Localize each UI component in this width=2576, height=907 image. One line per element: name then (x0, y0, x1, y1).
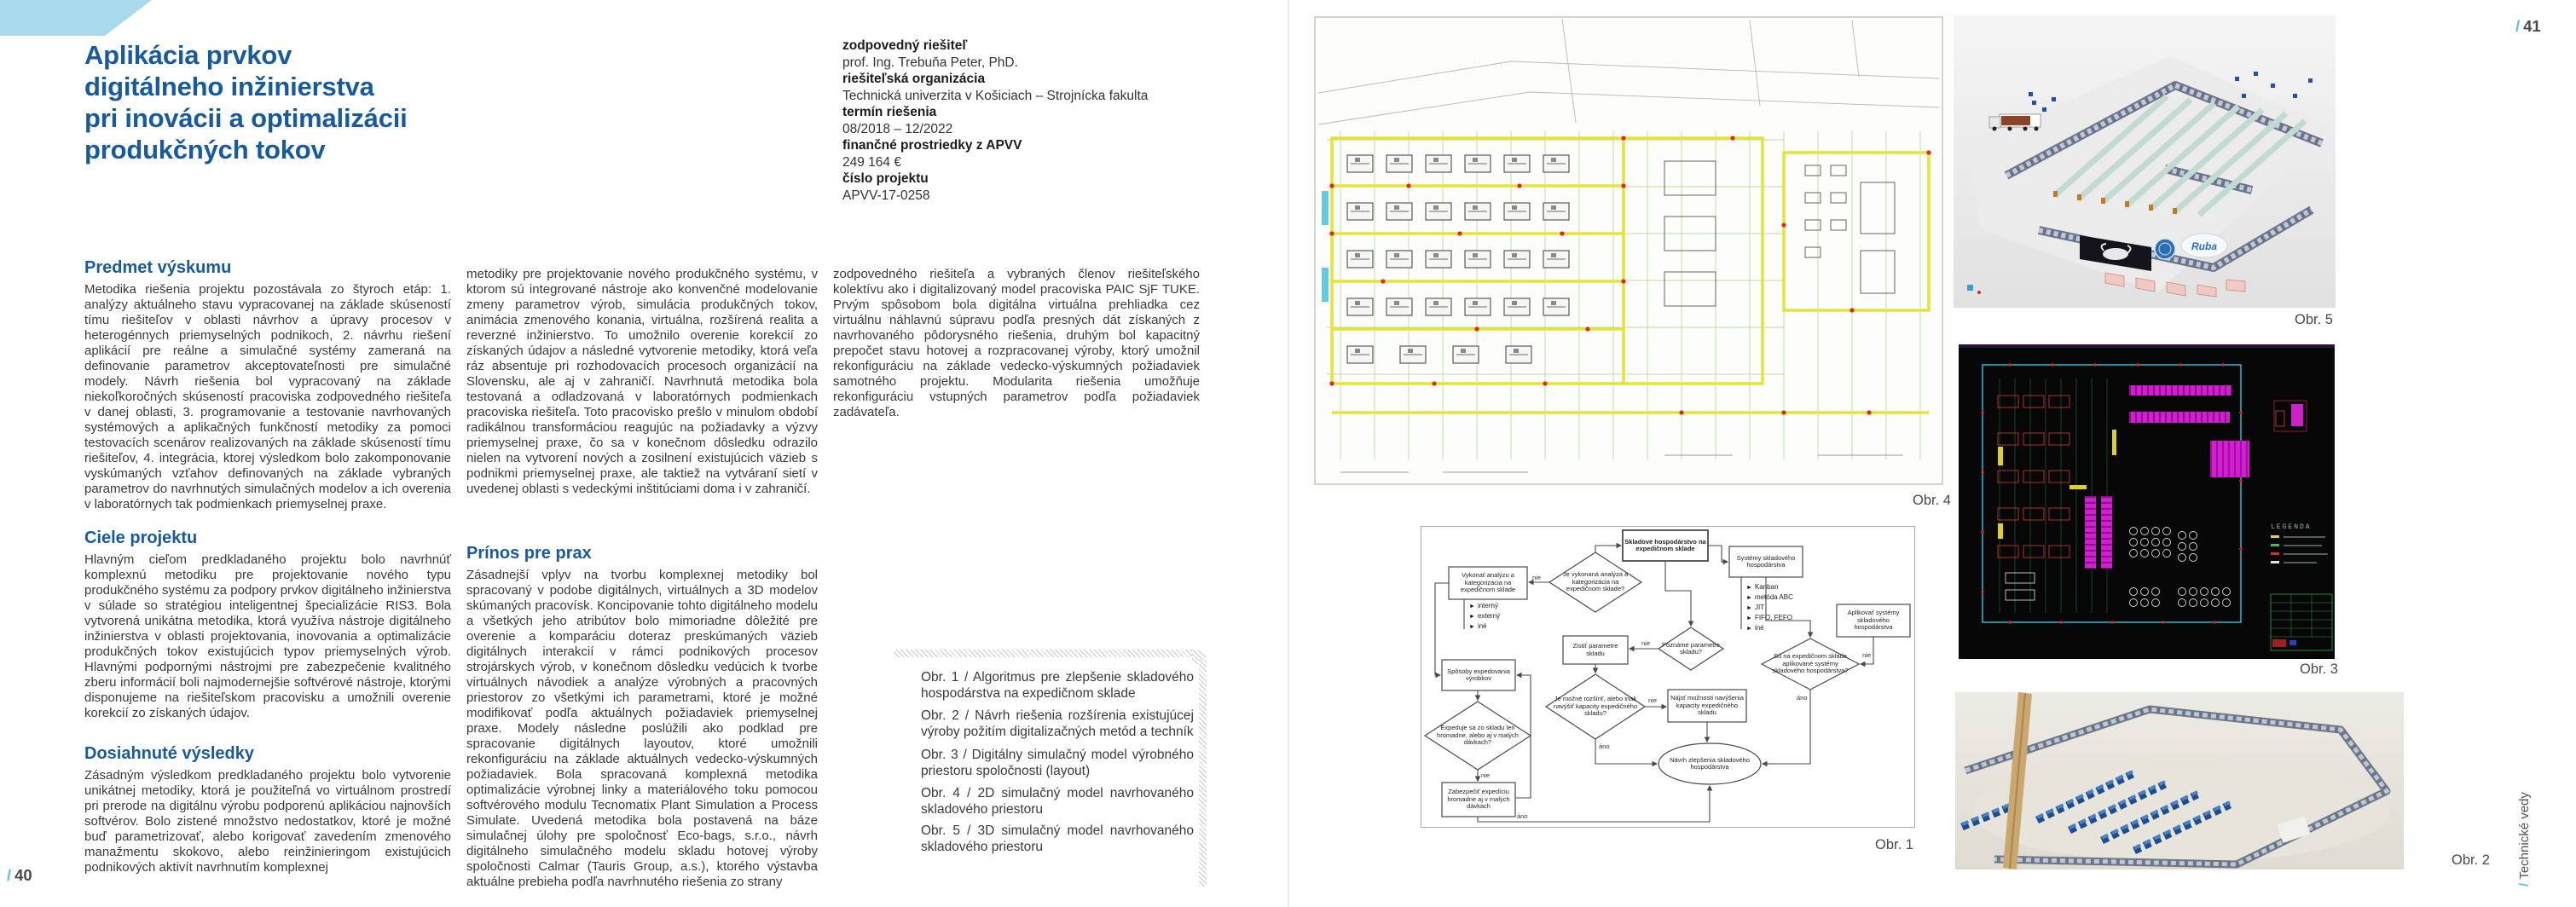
captions-frame-right (1199, 660, 1207, 887)
flowchart-node-end: Návrh zlepšenia skladového hospodárstva (1664, 747, 1756, 781)
meta-label: finančné prostriedky z APVV (842, 137, 1218, 154)
section-heading: Dosiahnuté výsledky (84, 743, 451, 764)
bullet-arrow-icon: ► (1746, 615, 1752, 621)
section-heading: Predmet výskumu (84, 257, 451, 278)
section-body: Hlavným cieľom predkladaného projektu bo… (84, 552, 451, 721)
section-body: Zásadným výsledkom predkladaného projekt… (84, 768, 451, 875)
bullet-arrow-icon: ► (1746, 605, 1752, 611)
flowchart-node-systems: Systémy skladového hospodárstva (1731, 548, 1801, 575)
bullet-label: JIT (1755, 604, 1764, 611)
bullet-label: FIFO, FEFO (1755, 614, 1792, 621)
flowchart-node-d-systems: Sú na expedičnom sklade aplikované systé… (1766, 643, 1855, 685)
page-number-right: /41 (2515, 17, 2541, 36)
edge-label-no: nie (1648, 696, 1657, 704)
page-number-value: 40 (14, 866, 32, 884)
meta-value: 08/2018 – 12/2022 (842, 121, 1218, 138)
figure-warehouse-flowchart: Skladové hospodárstvo na expedičnom skla… (1421, 526, 1915, 828)
bullet-arrow-icon: ► (1746, 626, 1752, 632)
section-body: zodpovedného riešiteľa a vybraných členo… (833, 267, 1200, 420)
edge-label-no: nie (1532, 574, 1541, 581)
ruba-logo: Ruba (2181, 234, 2227, 257)
section-prinos-continuation: zodpovedného riešiteľa a vybraných členo… (833, 267, 1200, 420)
section-heading: Ciele projektu (84, 528, 451, 548)
bullet-label: externý (1478, 612, 1500, 620)
section-prinos-pre-prax: Prínos pre prax Zásadnejší vplyv na tvor… (466, 543, 818, 890)
figure-caption-1: Obr. 1 / Algoritmus pre zlepšenie sklado… (921, 669, 1194, 702)
section-ciele-projektu: Ciele projektu Hlavným cieľom predkladan… (84, 528, 451, 721)
flowchart-bullet-item: ►iné (1746, 624, 1764, 633)
bullet-arrow-icon: ► (1469, 604, 1475, 609)
section-heading: Prínos pre prax (466, 543, 818, 563)
figure-label-obr5: Obr. 5 (2265, 312, 2333, 328)
flowchart-bullet-item: ►JIT (1746, 604, 1764, 612)
flowchart-node-d-analysis: Je vykonaná analýza a kategorizácia na e… (1558, 563, 1633, 602)
edge-label-no: nie (1641, 639, 1650, 647)
meta-label: termín riešenia (842, 104, 1218, 121)
figure-cad-floor-plan (1306, 12, 1951, 490)
flowchart-bullet-item: ►externý (1469, 612, 1500, 621)
flowchart-node-d-expand: Je možné rozšíriť, alebo inak navýšiť ka… (1553, 682, 1638, 731)
edge-label-no: nie (1481, 771, 1490, 779)
meta-label: riešiteľská organizácia (842, 71, 1218, 88)
bullet-arrow-icon: ► (1469, 614, 1475, 620)
flowchart-node-get-params: Zistiť parametre skladu (1565, 638, 1626, 662)
flowchart-node-d-params: Poznáme parametre skladu? (1662, 634, 1720, 663)
article-title: Aplikácia prvkov digitálneho inžinierstv… (84, 39, 460, 165)
top-border (1959, 344, 2335, 348)
figure-3d-layout-model (1955, 692, 2404, 869)
meta-label: číslo projektu (842, 170, 1218, 188)
figure-caption-3: Obr. 3 / Digitálny simulačný model výrob… (921, 747, 1194, 779)
project-metadata: zodpovedný riešiteľ prof. Ing. Trebuňa P… (842, 38, 1218, 204)
edge-label-yes: áno (1517, 812, 1528, 820)
bullet-label: iné (1478, 622, 1487, 630)
section-dosiahnute-vysledky: Dosiahnuté výsledky Zásadným výsledkom p… (84, 743, 451, 875)
section-predmet-vyskumu: Predmet výskumu Metodika riešenia projek… (84, 257, 451, 512)
captions-frame-top (894, 650, 1194, 657)
layout-3d-image (1955, 692, 2404, 869)
flowchart-node-dispatch-methods: Spôsoby expedovania výrobkov (1444, 661, 1514, 689)
bullet-label: iné (1755, 624, 1764, 632)
slash-icon: / (2517, 883, 2532, 887)
magazine-spread: Aplikácia prvkov digitálneho inžinierstv… (0, 0, 2576, 907)
ruba-logo-text: Ruba (2191, 240, 2217, 252)
cad-floor-plan-image (1306, 12, 1951, 490)
section-tag-vertical: / Technické vedy (2517, 750, 2532, 887)
bullet-arrow-icon: ► (1469, 624, 1475, 630)
section-body: metodiky pre projektovanie nového produk… (466, 267, 818, 497)
bullet-label: interný (1478, 602, 1498, 609)
floor-shadow (1972, 760, 2390, 863)
figure-label-obr2: Obr. 2 (2422, 852, 2490, 869)
bullet-arrow-icon: ► (1746, 595, 1752, 601)
meta-value: 249 164 € (842, 154, 1218, 171)
round-company-logo (2155, 239, 2175, 259)
page-gutter-divider (1288, 0, 1289, 907)
figure-dark-cad-layout: LEGENDA (1959, 344, 2335, 659)
figure-label-obr3: Obr. 3 (2270, 661, 2338, 678)
slash-icon: / (7, 866, 11, 884)
section-dosiahnute-continuation: metodiky pre projektovanie nového produk… (466, 267, 818, 497)
figure-label-obr4: Obr. 4 (1876, 493, 1951, 509)
legend-title: LEGENDA (2271, 523, 2312, 531)
section-body: Metodika riešenia projektu pozostávala z… (84, 282, 451, 512)
flowchart-node-ensure-dispatch: Zabezpečiť expedíciu hromadne aj v malýc… (1444, 784, 1514, 815)
section-body: Zásadnejší vplyv na tvorbu komplexnej me… (466, 568, 818, 890)
figure-label-obr1: Obr. 1 (1842, 837, 1913, 853)
flowchart-node-d-batches: Expeduje sa zo skladu len hromadne, aleb… (1432, 711, 1524, 760)
warehouse-3d-image: Ruba (1954, 15, 2336, 308)
bullet-arrow-icon: ► (1746, 585, 1752, 591)
edge-label-no: nie (1862, 651, 1871, 659)
page-number-value: 41 (2523, 17, 2541, 35)
edge-label-yes: áno (1797, 694, 1808, 702)
flowchart-node-analyze: Vykonať analýzu a kategorizácia na exped… (1450, 569, 1525, 598)
meta-value: prof. Ing. Trebuňa Peter, PhD. (842, 55, 1218, 72)
flowchart-node-find-options: Nájsť možnosti navýšenia kapacity expedi… (1670, 691, 1745, 720)
flowchart-node-start: Skladové hospodárstvo na expedičnom skla… (1624, 532, 1706, 559)
corner-accent-shape (0, 0, 152, 36)
bullet-label: Kanban (1755, 583, 1779, 591)
edge-label-yes: áno (1599, 742, 1610, 750)
figure-caption-2: Obr. 2 / Návrh riešenia rozšírenia exist… (921, 708, 1194, 740)
flowchart-bullet-item: ►interný (1469, 602, 1498, 610)
bullet-label: metóda ABC (1755, 593, 1793, 601)
flowchart-node-apply-systems: Aplikovať systémy skladového hospodárstv… (1838, 606, 1908, 635)
slash-icon: / (2515, 17, 2520, 35)
meta-value: APVV-17-0258 (842, 188, 1218, 205)
figure-caption-5: Obr. 5 / 3D simulačný model navrhovaného… (921, 823, 1194, 855)
flowchart-bullet-item: ►metóda ABC (1746, 593, 1793, 602)
page-number-left: /40 (7, 866, 32, 885)
flowchart-bullet-item: ►Kanban (1746, 583, 1779, 592)
meta-value: Technická univerzita v Košiciach – Stroj… (842, 88, 1218, 105)
flowchart-bullet-item: ►iné (1469, 622, 1487, 631)
figure-3d-warehouse-model: Ruba (1954, 15, 2336, 308)
section-tag-label: Technické vedy (2517, 792, 2532, 880)
meta-label: zodpovedný riešiteľ (842, 38, 1218, 55)
dark-cad-image: LEGENDA (1959, 344, 2335, 659)
flowchart-bullet-item: ►FIFO, FEFO (1746, 614, 1792, 622)
figure-caption-4: Obr. 4 / 2D simulačný model navrhovaného… (921, 785, 1194, 817)
